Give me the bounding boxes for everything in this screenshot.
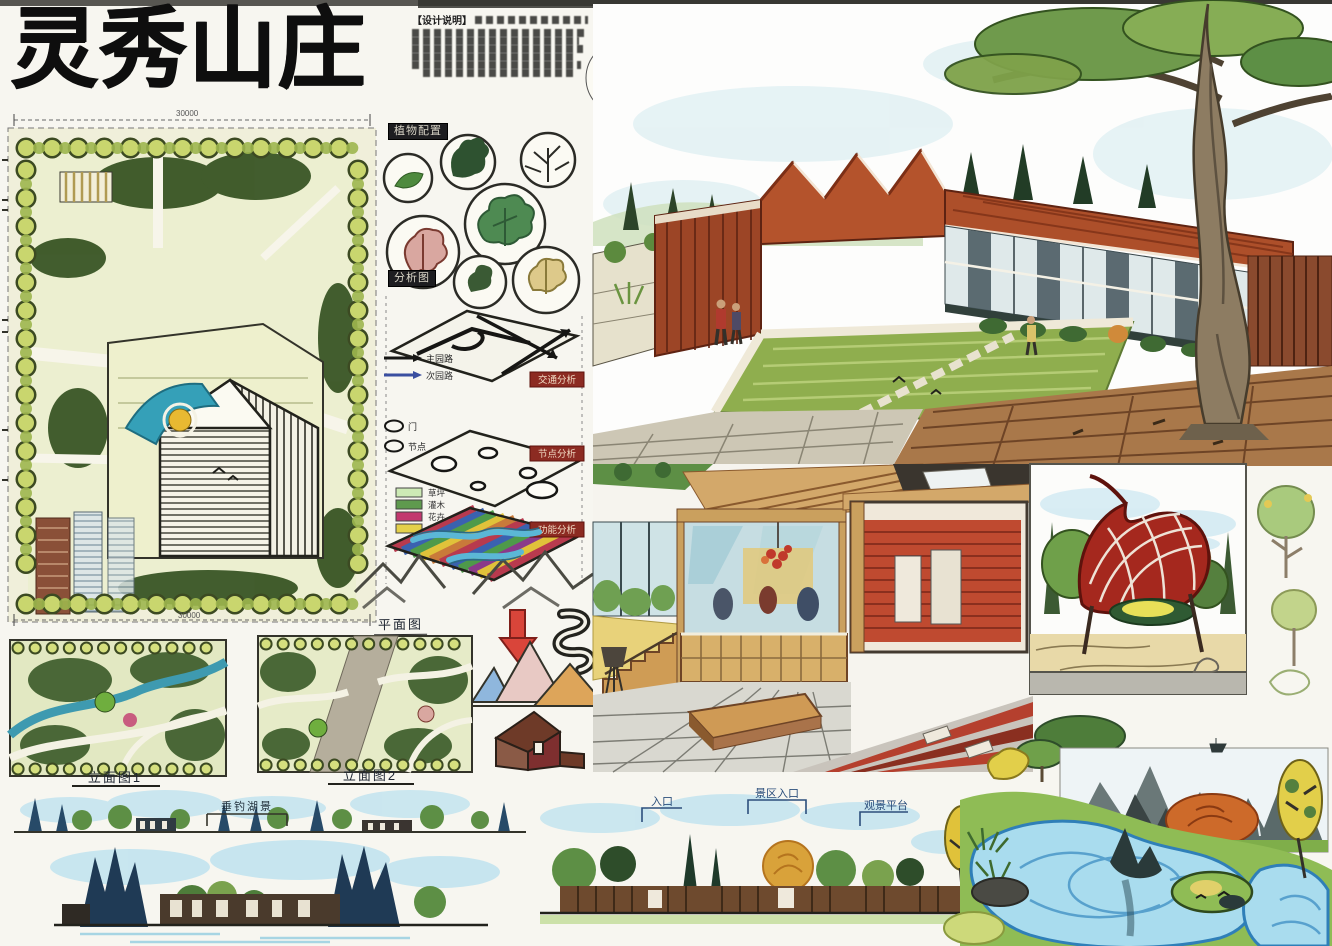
notes-scribble [475,16,588,24]
route-main-label: 主园路 [426,353,453,364]
elevations-mid-drawing: 入口 景区入口 观景平台 [530,778,982,946]
entrance-callout-label: 入口 [651,796,673,808]
design-notes-label: 【设计说明】 [412,12,472,27]
elevation-2-label: 立面图2 [343,768,397,783]
analysis-legend-chip: 分析图 [388,270,436,287]
board-title: 灵秀山庄 [10,4,430,94]
plant-legend-chip: 植物配置 [388,123,448,140]
node-analysis-label: 节点分析 [538,448,577,460]
elevations-left-drawing: 立面图1 立面图2 垂钓湖景 [10,762,530,946]
presentation-board: 灵秀山庄 【设计说明】 [0,0,1332,946]
traffic-analysis-label: 交通分析 [538,374,577,386]
node-label: 节点 [408,442,426,452]
lake-view-callout-label: 垂钓湖景 [221,799,273,813]
zone-label-0: 草坪 [428,488,446,498]
gate-label: 门 [408,421,417,432]
plan-thumbnail-1 [10,640,226,776]
design-notes: 【设计说明】 [412,10,588,116]
master-plan-drawing [8,128,376,622]
pond-plan-drawing [960,700,1332,946]
elevation-1-label: 立面图1 [88,770,142,785]
viewing-platform-callout-label: 观景平台 [864,798,908,812]
plan-thumbnail-2 [258,636,472,772]
dimension-bottom: 30000 [8,610,376,628]
left-tick-marks [0,150,10,490]
pavilion-sketch [1030,464,1246,694]
route-secondary-label: 次园路 [426,370,453,381]
side-tree-sketch [1250,470,1332,720]
main-perspective-drawing [593,4,1332,464]
dimension-bottom-label: 30000 [178,611,201,620]
concept-diagram [468,606,608,776]
dimension-top-label: 30000 [176,109,199,118]
dimension-top: 30000 [8,106,376,126]
zone-label-1: 灌木 [428,500,446,510]
scenic-entrance-callout-label: 景区入口 [755,787,799,800]
